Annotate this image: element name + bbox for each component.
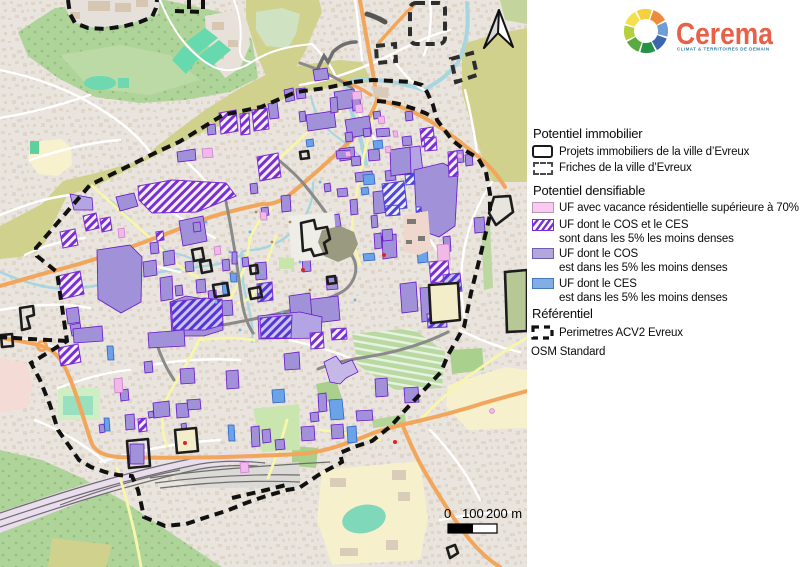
svg-text:100: 100 (462, 506, 484, 521)
svg-text:0: 0 (444, 506, 451, 521)
svg-text:200 m: 200 m (486, 506, 522, 521)
svg-text:CLIMAT & TERRITOIRES DE DEMAIN: CLIMAT & TERRITOIRES DE DEMAIN (677, 47, 770, 52)
